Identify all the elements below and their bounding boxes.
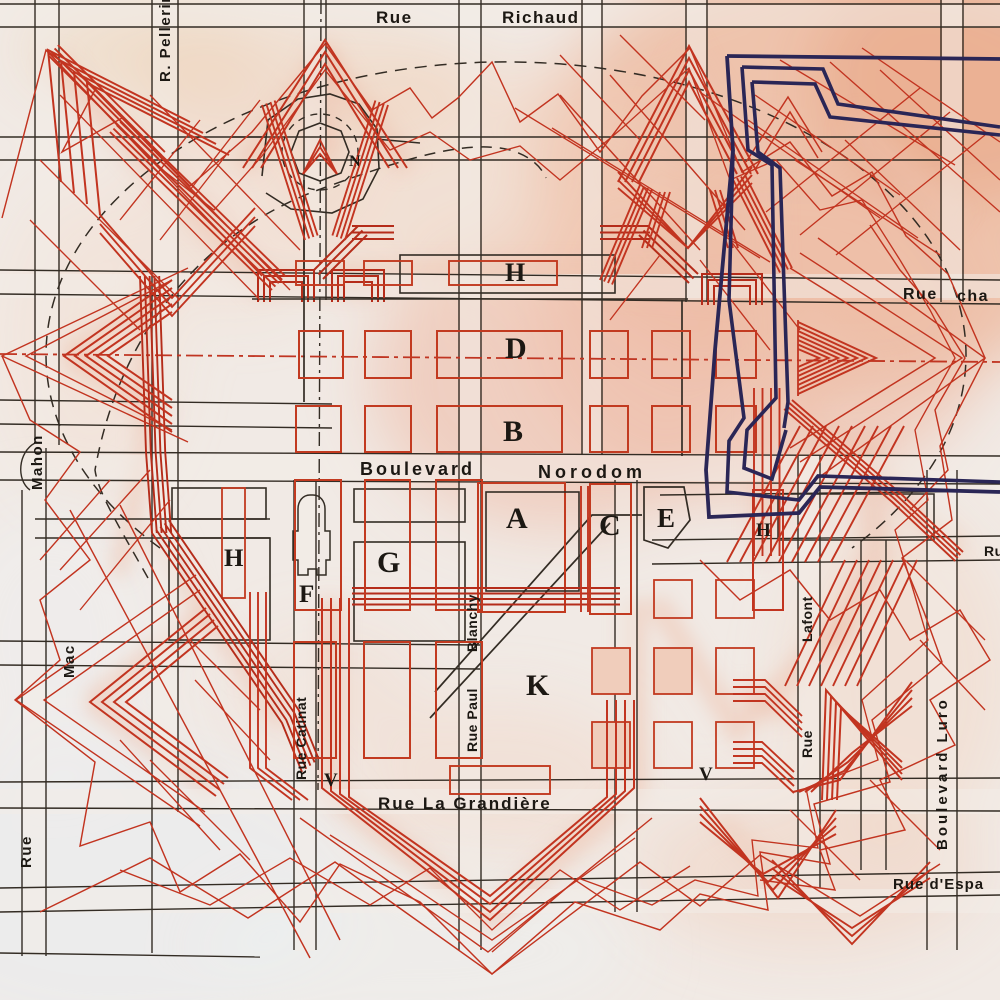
svg-text:D: D: [505, 332, 527, 365]
svg-text:cha: cha: [957, 288, 989, 305]
svg-text:Mac: Mac: [61, 644, 78, 678]
svg-text:E: E: [657, 503, 675, 533]
svg-text:Ru: Ru: [984, 543, 1000, 559]
svg-text:V: V: [324, 770, 338, 791]
svg-text:Richaud: Richaud: [502, 8, 580, 27]
svg-text:Rue Catinat: Rue Catinat: [293, 697, 309, 780]
svg-text:Boulevard: Boulevard: [360, 459, 475, 479]
svg-text:Rue La Grandière: Rue La Grandière: [378, 794, 552, 813]
svg-text:Rue: Rue: [18, 835, 35, 868]
svg-text:H: H: [505, 258, 525, 287]
svg-text:Norodom: Norodom: [538, 462, 646, 482]
svg-text:H: H: [756, 520, 771, 541]
svg-text:Rue: Rue: [903, 286, 938, 303]
svg-text:G: G: [377, 546, 400, 579]
svg-text:Rue Paul: Rue Paul: [464, 688, 480, 752]
svg-text:F: F: [299, 581, 314, 608]
svg-text:B: B: [503, 415, 523, 448]
svg-text:Blanchy: Blanchy: [464, 594, 480, 652]
svg-text:A: A: [506, 502, 528, 535]
svg-text:V: V: [699, 764, 713, 785]
svg-text:H: H: [224, 545, 244, 572]
svg-text:Boulevard Luro: Boulevard Luro: [934, 697, 951, 850]
svg-text:K: K: [526, 669, 550, 702]
svg-text:C: C: [599, 509, 621, 542]
svg-text:N: N: [349, 153, 361, 170]
svg-text:Rue: Rue: [799, 730, 815, 758]
svg-text:Mahon: Mahon: [29, 434, 46, 490]
svg-text:Rue d'Espa: Rue d'Espa: [893, 876, 984, 893]
svg-text:Lafont: Lafont: [799, 596, 815, 642]
svg-text:Rue: Rue: [376, 8, 413, 27]
svg-text:R. Pellerin: R. Pellerin: [157, 0, 174, 82]
